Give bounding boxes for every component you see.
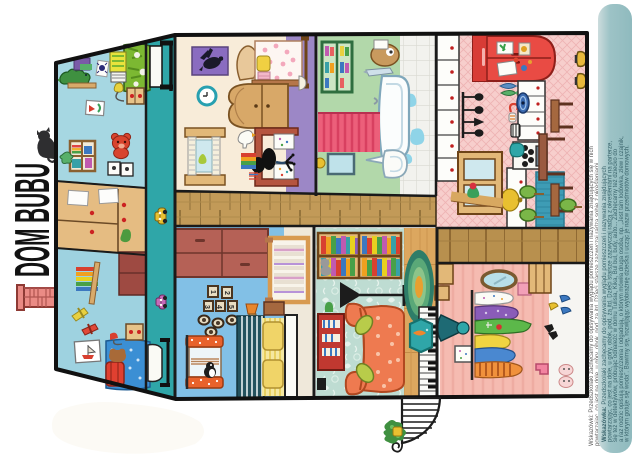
svg-text:2: 2	[223, 291, 230, 295]
svg-text:DOM BUBU: DOM BUBU	[5, 163, 60, 277]
svg-text:5: 5	[227, 305, 234, 309]
svg-text:1: 1	[209, 290, 216, 294]
svg-text:w którym gotuje się woda”. Baw: w którym gotuje się woda”. Bawimy się, r…	[624, 145, 630, 443]
svg-text:3: 3	[203, 305, 210, 309]
svg-text:4: 4	[215, 305, 222, 309]
